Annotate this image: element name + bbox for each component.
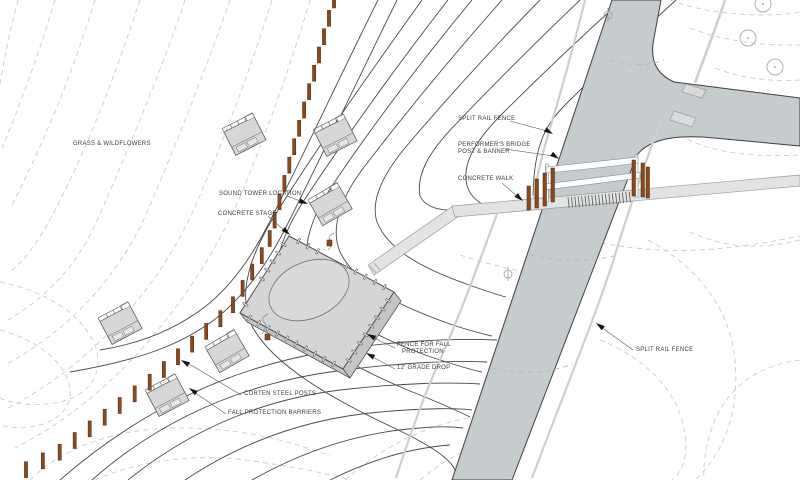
corten-post [527,186,531,210]
label-fence-fall-protection: FENCE FOR FALL PROTECTION [397,342,451,356]
corten-post [327,10,330,26]
site-plan-drawing [0,0,800,480]
label-performers-bridge: PERFORMER'S BRIDGE POST & BANNER [458,142,531,156]
leader [601,327,633,350]
leader [372,337,395,348]
corten-post [632,160,636,196]
tree-icon [767,59,783,75]
survey-marker-icon [504,267,512,281]
corten-post [251,264,254,280]
label-split-rail-fence-top: SPLIT RAIL FENCE [458,116,515,123]
corten-post [298,120,301,136]
label-concrete-walk: CONCRETE WALK [458,176,513,183]
corten-post [308,84,311,100]
label-grass-wildflowers: GRASS & WILDFLOWERS [73,141,151,148]
corten-post [88,421,91,437]
corten-post [231,297,234,313]
corten-post-dot [265,334,270,340]
corten-post [118,398,121,414]
corten-post [332,0,335,8]
label-concrete-stage: CONCRETE STAGE [218,211,277,218]
corten-post [73,433,76,449]
leader [371,356,395,369]
corten-post [283,175,286,191]
corten-post [322,29,325,45]
tree-icon [755,0,771,12]
corten-post [268,231,271,247]
label-corten-steel-posts: CORTEN STEEL POSTS [244,391,316,398]
road [452,0,800,480]
corten-post [241,280,244,296]
leader [510,121,547,131]
leader-arrow [180,358,190,367]
corten-post [162,362,165,378]
label-line: POST & BANNER [458,149,531,156]
corten-post [205,323,208,339]
corten-post [219,311,222,327]
leader [502,183,518,197]
corten-post [41,453,44,469]
corten-post [313,65,316,81]
trees [740,0,783,75]
trail-path [695,0,725,83]
label-line: PERFORMER'S BRIDGE [458,142,531,149]
corten-post [293,139,296,155]
corten-post [191,336,194,352]
label-line: FENCE FOR FALL [397,342,451,349]
corten-post [133,386,136,402]
corten-post [58,444,61,460]
tree-icon [740,30,756,46]
corten-post [535,179,539,208]
concrete-stage [240,233,401,378]
corten-post [543,173,547,206]
corten-post [303,102,306,118]
corten-post [317,47,320,63]
leader [194,392,226,414]
concrete-walk-ramp [368,206,459,275]
leader-arrow [299,198,309,206]
corten-post [260,248,263,264]
sound-tower [205,329,250,372]
label-sound-tower-location: SOUND TOWER LOCATION [219,191,301,198]
label-fall-protection-barriers: FALL PROTECTION BARRIERS [228,410,321,417]
corten-post [103,409,106,425]
corten-post [641,163,645,197]
corten-post [288,157,291,173]
label-line: PROTECTION [397,349,451,356]
site-plan-canvas: GRASS & WILDFLOWERS SOUND TOWER LOCATION… [0,0,800,480]
corten-post-dot [327,240,332,246]
label-split-rail-fence-bottom: SPLIT RAIL FENCE [636,347,693,354]
corten-post [24,462,27,478]
sound-tower [98,302,142,345]
label-grade-drop: 12' GRADE DROP [397,365,450,372]
corten-post [551,168,555,202]
corten-post [176,349,179,365]
corten-post [646,167,650,198]
